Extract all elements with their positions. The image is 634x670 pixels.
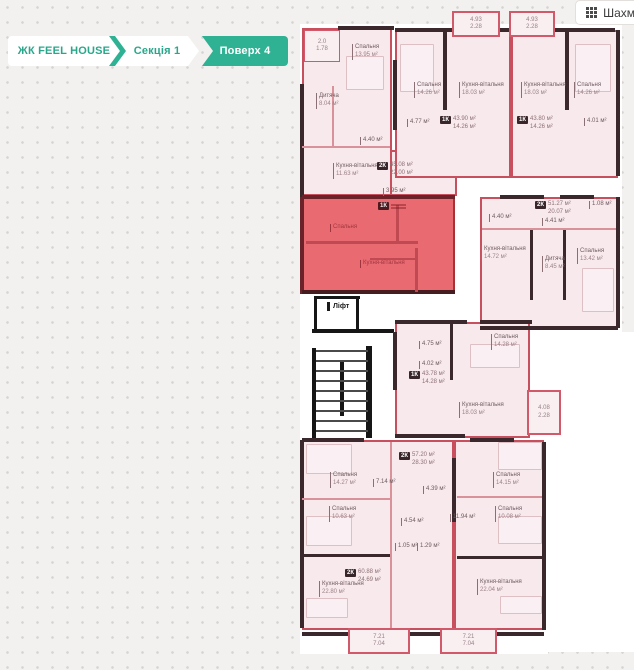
- room-label: Спальня14.15 м²: [493, 472, 520, 488]
- plan-underlay: [548, 332, 634, 652]
- room-label: 3.95 м²: [383, 188, 405, 196]
- wall-segment: [395, 434, 465, 438]
- unit-type-badge: 2К45.08 м²22.00 м²: [377, 162, 413, 177]
- stairs: [316, 350, 368, 438]
- unit-type-badge: 2К60.88 м²24.69 м²: [345, 569, 381, 584]
- breadcrumb-item-section[interactable]: Секція 1: [115, 36, 199, 66]
- furniture-outline: [306, 598, 348, 618]
- wall-segment: [480, 326, 618, 330]
- unit-type-badge: 2К51.27 м²20.07 м²: [535, 201, 571, 216]
- apartment-unit-selected-1k[interactable]: [302, 197, 455, 294]
- balcony: 7.217.04: [348, 628, 410, 654]
- unit-type-badge: 1К43.78 м²14.28 м²: [409, 371, 445, 386]
- wall-segment: [302, 632, 350, 636]
- furniture-outline: [346, 56, 384, 90]
- room-label: 4.41 м²: [542, 218, 564, 226]
- wall-segment: [450, 324, 453, 380]
- wall-segment: [616, 30, 620, 176]
- room-label: 1.29 м²: [417, 543, 439, 551]
- wall-segment: [482, 228, 616, 230]
- room-label: Спальня: [330, 224, 357, 232]
- furniture-outline: [498, 442, 542, 470]
- room-label: 4.40 м²: [489, 214, 511, 222]
- wall-segment: [312, 329, 394, 333]
- wall-segment: [470, 438, 514, 442]
- room-label: 4.02 м²: [419, 361, 441, 369]
- wall-segment: [393, 332, 397, 390]
- room-label: 7.14 м²: [373, 479, 395, 487]
- lift-label: Ліфт: [327, 302, 349, 311]
- furniture-outline: [500, 596, 542, 614]
- room-label: Спальня14.28 м²: [491, 334, 518, 350]
- wall-segment: [300, 440, 304, 628]
- room-label: 11.94 м²: [450, 514, 475, 522]
- wall-segment: [500, 195, 544, 199]
- furniture-outline: [306, 444, 352, 474]
- wall-segment: [565, 32, 569, 110]
- wall-segment: [302, 195, 455, 199]
- room-label: 4.40 м²: [360, 137, 382, 145]
- wall-segment: [396, 205, 399, 243]
- wall-segment: [314, 296, 317, 329]
- room-label: Кухня-вітальня14.72 м²: [481, 246, 526, 262]
- wall-segment: [443, 32, 447, 110]
- wall-segment: [410, 632, 442, 636]
- wall-segment: [356, 296, 359, 329]
- grid-3x3-icon: [586, 7, 597, 18]
- wall-segment: [314, 296, 360, 299]
- chess-view-button[interactable]: Шахм: [575, 0, 634, 25]
- furniture-outline: [582, 268, 614, 312]
- room-label: 4.01 м²: [584, 118, 606, 126]
- wall-segment: [393, 60, 397, 130]
- wall-segment: [395, 320, 467, 324]
- wall-segment: [302, 438, 364, 442]
- wall-segment: [415, 248, 418, 292]
- wall-segment: [480, 320, 532, 324]
- wall-segment: [302, 146, 390, 148]
- breadcrumb-item-floor[interactable]: Поверх 4: [202, 36, 288, 66]
- room-label: Кухня-вітальня22.04 м²: [477, 579, 522, 595]
- room-label: Дитяча8.45 м²: [542, 256, 565, 272]
- breadcrumb-item-complex[interactable]: ЖК FEEL HOUSE: [8, 36, 120, 66]
- balcony: 4.932.28: [452, 11, 500, 37]
- wall-segment: [300, 197, 304, 294]
- balcony: 4.932.28: [509, 11, 555, 37]
- wall-segment: [616, 197, 620, 328]
- room-label: 1.05 м²: [395, 543, 417, 551]
- unit-type-badge: 1К43.90 м²14.26 м²: [440, 116, 476, 131]
- wall-segment: [530, 230, 533, 300]
- unit-type-badge: 2К57.20 м²28.30 м²: [399, 452, 435, 467]
- room-label: 1.08 м²: [589, 201, 611, 209]
- room-label: 4.39 м²: [423, 486, 445, 494]
- room-label: Кухня-вітальня11.63 м²: [333, 163, 378, 179]
- floor-plan: 4.932.284.932.284.082.287.217.047.217.04…: [0, 0, 634, 670]
- room-label: Кухня-вітальня18.03 м²: [459, 402, 504, 418]
- chess-view-button-label: Шахм: [603, 6, 634, 20]
- room-label: Кухня-вітальня18.03 м²: [459, 82, 504, 98]
- wall-segment: [542, 442, 546, 630]
- room-label: 4.54 м²: [401, 518, 423, 526]
- wall-segment: [338, 26, 394, 30]
- room-label: Спальня10.08 м²: [495, 506, 522, 522]
- wall-segment: [553, 28, 615, 32]
- room-label: Спальня13.95 м²: [352, 44, 379, 60]
- wall-segment: [457, 496, 542, 498]
- unit-type-badge: 1К43.80 м²14.26 м²: [517, 116, 553, 131]
- room-label: Спальня13.42 м²: [577, 248, 604, 264]
- balcony: 7.217.04: [440, 628, 497, 654]
- room-label: 4.75 м²: [419, 341, 441, 349]
- room-label: Кухня-вітальня: [360, 260, 405, 268]
- balcony: 4.082.28: [527, 390, 561, 435]
- wall-segment: [302, 290, 455, 294]
- wall-segment: [302, 554, 392, 557]
- room-label: Дитяча8.04 м²: [316, 93, 339, 109]
- wall-segment: [452, 458, 456, 522]
- room-label: Спальня14.26 м²: [574, 82, 601, 98]
- wall-segment: [306, 241, 418, 244]
- wall-segment: [457, 556, 542, 559]
- room-label: Кухня-вітальня18.03 м²: [521, 82, 566, 98]
- wall-segment: [302, 498, 390, 500]
- room-label: Спальня14.26 м²: [414, 82, 441, 98]
- room-label: Спальня14.27 м²: [330, 472, 357, 488]
- wall-segment: [560, 195, 594, 199]
- wall-segment: [390, 442, 392, 628]
- room-label: 4.77 м²: [407, 119, 429, 127]
- wall-segment: [497, 632, 544, 636]
- room-label: Спальня10.63 м²: [329, 506, 356, 522]
- unit-type-badge: 1К: [378, 202, 406, 211]
- wall-segment: [300, 84, 304, 198]
- balcony: 2.01.78: [304, 30, 340, 62]
